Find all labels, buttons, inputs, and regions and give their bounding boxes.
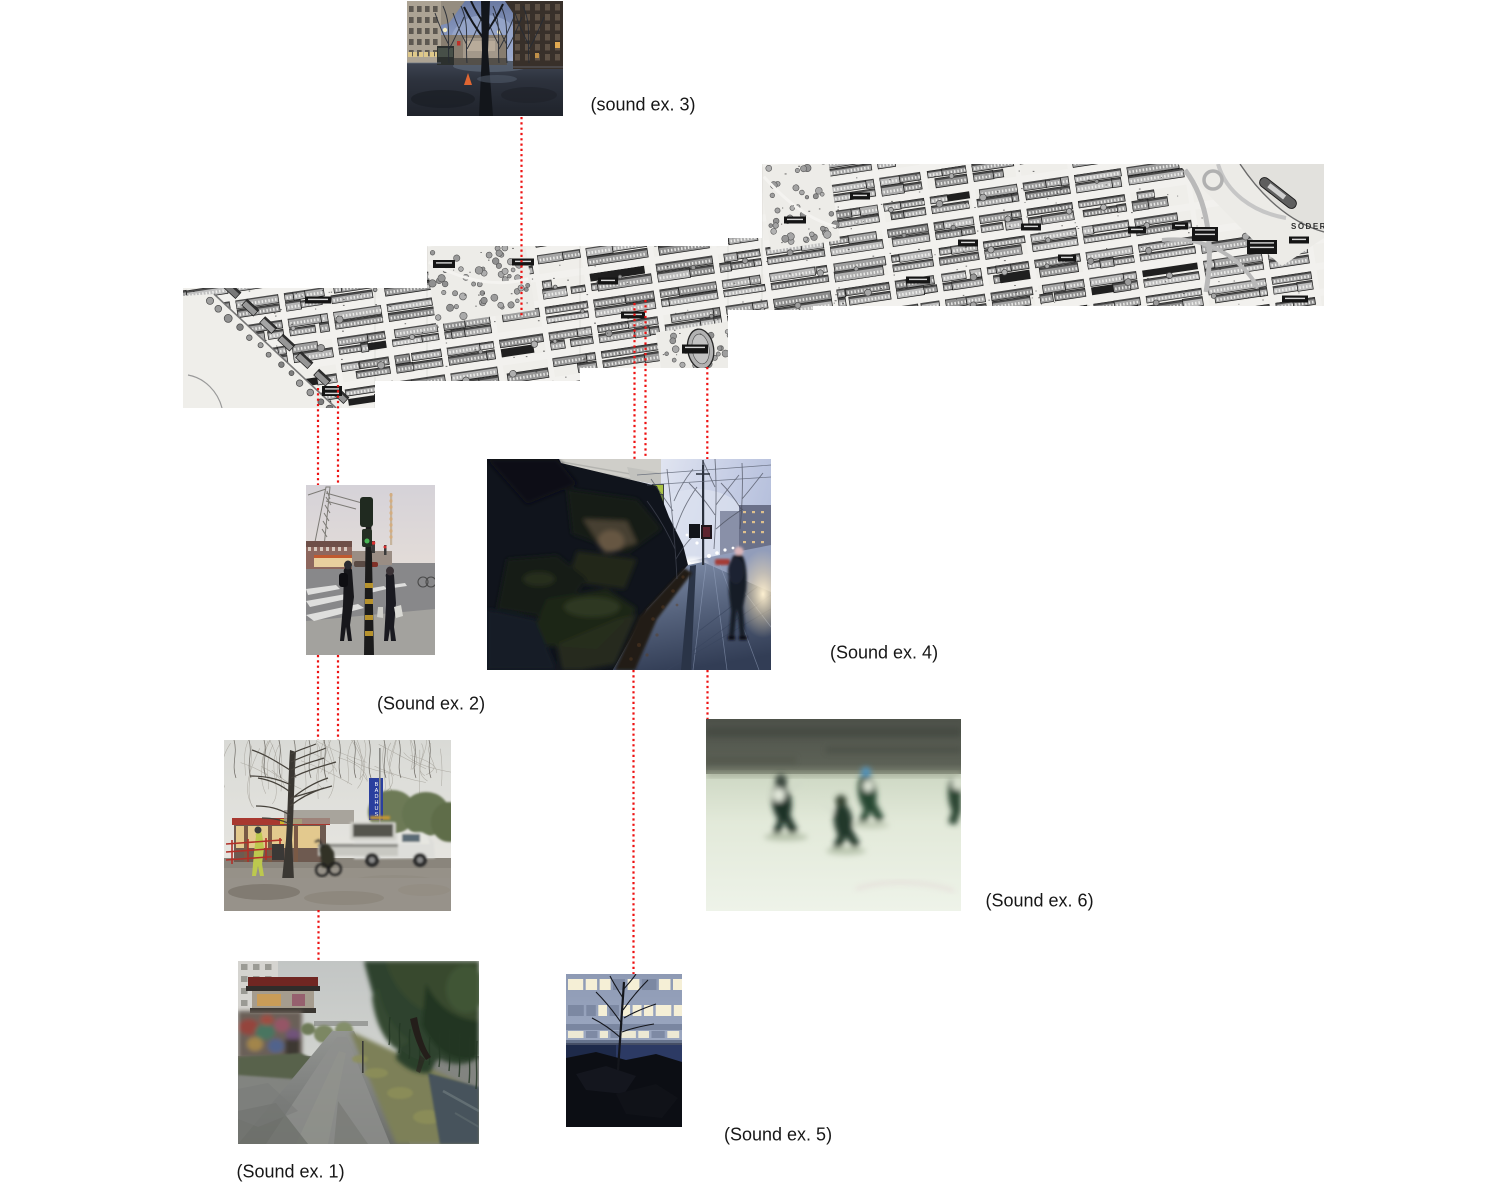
svg-text:(Sound ex. 6): (Sound ex. 6) — [986, 891, 1094, 911]
svg-text:(Sound ex. 2): (Sound ex. 2) — [377, 693, 485, 713]
svg-text:(sound ex. 3): (sound ex. 3) — [591, 95, 696, 115]
svg-text:(Sound ex. 4): (Sound ex. 4) — [830, 643, 938, 663]
svg-text:(Sound ex. 1): (Sound ex. 1) — [237, 1162, 345, 1182]
svg-text:(Sound ex. 5): (Sound ex. 5) — [724, 1125, 832, 1145]
